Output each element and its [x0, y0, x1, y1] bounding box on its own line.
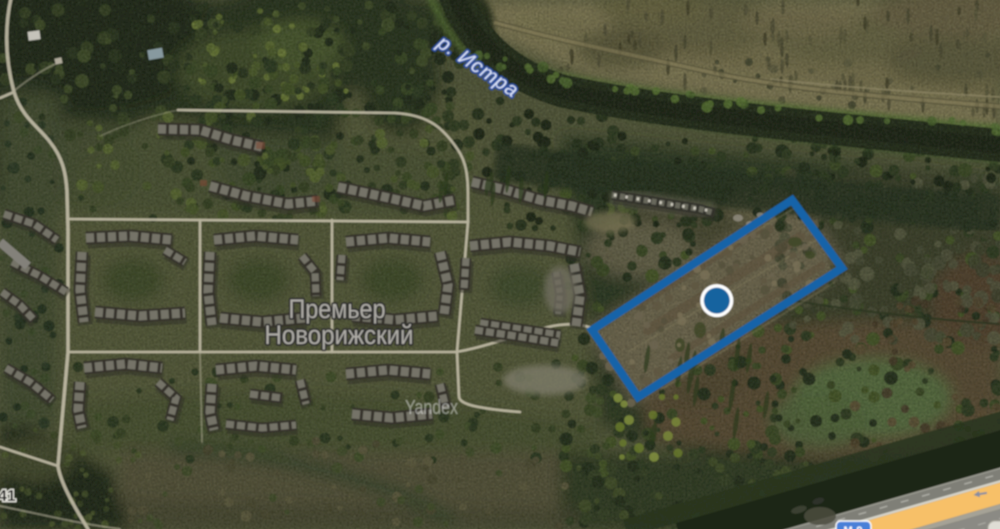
svg-text:Новорижский: Новорижский	[265, 320, 414, 350]
svg-text:М-9: М-9	[844, 525, 863, 529]
svg-text:41: 41	[0, 488, 16, 505]
svg-text:Yandex: Yandex	[405, 397, 458, 419]
